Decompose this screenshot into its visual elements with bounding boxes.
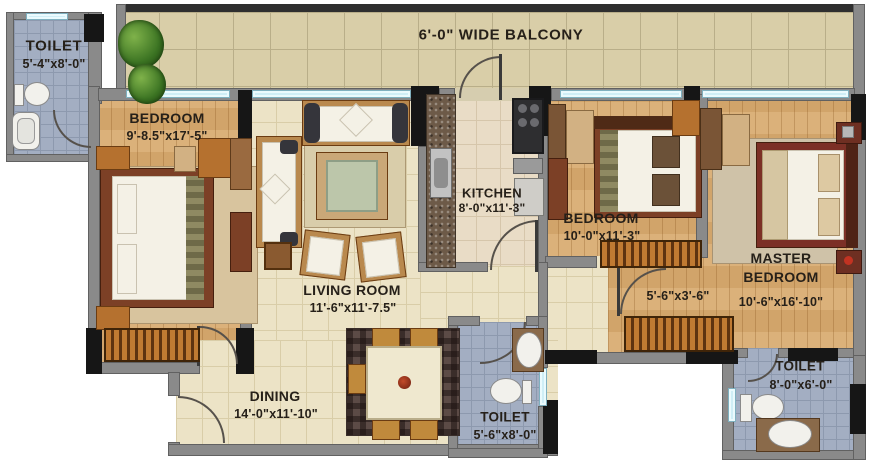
master-bedroom-dims: 10'-6"x16'-10": [739, 296, 824, 309]
dining-chair: [410, 328, 438, 348]
armchair-cushion: [362, 238, 400, 278]
side-table: [672, 100, 700, 136]
toilet-tl-name: TOILET: [26, 39, 83, 54]
bed-runner: [600, 130, 618, 212]
wall-bedroom-left-bottom: [88, 362, 200, 374]
kitchen-dims: 8'-0"x11'-3": [459, 202, 526, 214]
wall-column: [86, 328, 102, 374]
balcony-door-leaf: [499, 54, 502, 100]
table-centerpiece: [398, 376, 411, 389]
plant-icon: [128, 64, 166, 104]
wall-lobby-right: [538, 262, 548, 322]
window-toilet-br: [728, 388, 736, 422]
nightstand-item: [844, 256, 853, 265]
master-bedroom-name-1: MASTER: [751, 251, 812, 265]
bedroom-left-dims: 9'-8.5"x17'-5": [126, 130, 207, 143]
sofa-armrest: [392, 103, 408, 143]
side-table: [264, 242, 292, 270]
armchair-cushion: [306, 236, 344, 276]
bed-runner: [186, 176, 204, 300]
wardrobe: [600, 240, 702, 268]
bathtub-inner: [17, 118, 35, 144]
kitchen-door-leaf: [535, 220, 538, 272]
wall-column: [684, 86, 700, 101]
burner: [530, 104, 539, 113]
bedroom-left-name: BEDROOM: [129, 111, 204, 125]
toilet-tl-dims: 5'-4"x8'-0": [22, 58, 85, 71]
dining-chair: [372, 328, 400, 348]
chair: [174, 146, 196, 172]
living-room-dims: 11'-6"x11'-7.5": [310, 302, 397, 315]
wall-dining-left-top: [168, 372, 180, 396]
sofa-armrest: [280, 140, 298, 154]
wall-column: [850, 384, 866, 434]
living-room-name: LIVING ROOM: [303, 283, 400, 297]
bedroom-middle-name: BEDROOM: [563, 211, 638, 225]
floor-plan: 6'-0" WIDE BALCONY TOILET 5'-4"x8'-0" BE…: [0, 0, 870, 460]
wc-icon: [490, 378, 522, 404]
wc-tank: [522, 380, 532, 404]
dining-name: DINING: [250, 389, 301, 403]
wall-corridor-bedroom2: [545, 256, 597, 268]
pillow: [117, 244, 137, 294]
washbasin-icon: [516, 332, 542, 368]
master-bedroom-name-2: BEDROOM: [743, 270, 818, 284]
wall-passage-bottom: [596, 352, 688, 364]
pillow: [652, 174, 680, 206]
bench-mat: [700, 108, 722, 170]
pillow: [818, 198, 840, 236]
wc-icon: [24, 82, 50, 106]
sink-basin: [434, 158, 448, 188]
coffee-table-top: [326, 160, 378, 212]
wall-column: [236, 328, 254, 374]
wc-icon: [752, 394, 784, 420]
balcony-label: 6'-0" WIDE BALCONY: [419, 28, 584, 43]
window-bedroom-middle: [560, 90, 682, 98]
wardrobe: [624, 316, 734, 352]
toilet-bc-name: TOILET: [480, 410, 530, 424]
toilet-br-name: TOILET: [775, 359, 825, 373]
nightstand: [96, 306, 130, 330]
sofa-armrest: [304, 103, 320, 143]
burner: [530, 118, 539, 127]
pillow: [652, 136, 680, 168]
wall-column: [238, 90, 252, 138]
dining-dims: 14'-0"x11'-10": [234, 408, 318, 421]
nightstand: [96, 146, 130, 170]
wall-column: [543, 400, 558, 454]
wall-balcony-right: [853, 4, 865, 98]
pillow: [117, 184, 137, 234]
wc-tank: [14, 84, 24, 106]
dining-chair: [348, 364, 366, 394]
burner: [518, 118, 527, 127]
window-living-room: [252, 90, 411, 98]
passage-dims: 5'-6"x3'-6": [646, 290, 709, 303]
toilet-br-dims: 8'-0"x6'-0": [769, 379, 832, 392]
dining-chair: [410, 420, 438, 440]
wall-balcony-top: [116, 4, 865, 12]
wall-toilet-bc-top-left: [448, 316, 480, 326]
window-toilet-tl: [26, 13, 68, 20]
wall-column: [545, 350, 597, 364]
kitchen-appliance: [513, 158, 543, 174]
window-toilet-bc: [539, 368, 547, 406]
bed-headboard: [846, 142, 858, 248]
bedroom-middle-dims: 10'-0"x11'-3": [564, 230, 641, 243]
bed-blanket: [762, 150, 788, 240]
nightstand-item: [842, 126, 854, 138]
dresser: [230, 212, 252, 272]
kitchen-name: KITCHEN: [462, 187, 522, 200]
tv-unit: [230, 138, 252, 190]
plant-icon: [118, 20, 164, 68]
chaise: [722, 114, 750, 166]
washbasin-icon: [768, 420, 812, 448]
window-master-bedroom: [702, 90, 849, 98]
dining-chair: [372, 420, 400, 440]
wc-tank: [740, 394, 752, 422]
wall-column: [84, 14, 104, 42]
chaise: [566, 110, 594, 164]
burner: [518, 104, 527, 113]
toilet-bc-dims: 5'-6"x8'-0": [473, 429, 536, 442]
stove-icon: [512, 98, 544, 154]
wardrobe: [104, 328, 200, 362]
master-door-leaf: [617, 266, 620, 316]
wall-column: [686, 350, 738, 364]
pillow: [818, 154, 840, 192]
wall-toilet-bc-bottom: [448, 448, 548, 458]
